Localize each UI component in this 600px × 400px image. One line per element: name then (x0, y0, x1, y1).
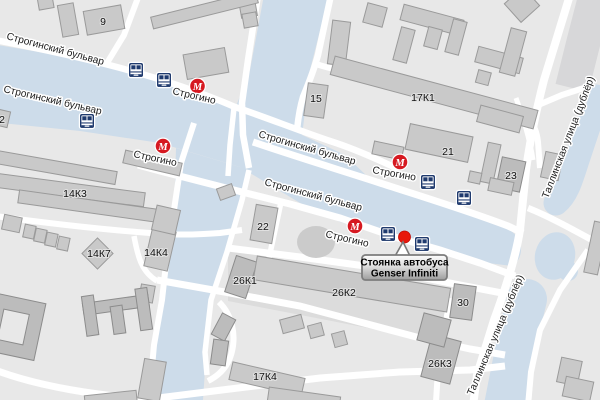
svg-text:21: 21 (442, 146, 454, 158)
svg-text:14К4: 14К4 (144, 247, 168, 259)
svg-text:Стоянка автобуса: Стоянка автобуса (360, 257, 449, 269)
svg-text:2: 2 (0, 114, 5, 126)
svg-text:14К7: 14К7 (87, 248, 111, 260)
svg-text:22: 22 (257, 221, 269, 233)
svg-text:26К1: 26К1 (233, 275, 257, 287)
svg-text:17К1: 17К1 (411, 92, 435, 104)
svg-text:30: 30 (457, 297, 469, 309)
svg-text:26К2: 26К2 (332, 287, 356, 299)
svg-text:23: 23 (505, 170, 517, 182)
svg-text:14К3: 14К3 (63, 188, 87, 200)
svg-text:Genser Infiniti: Genser Infiniti (371, 269, 438, 280)
svg-text:9: 9 (100, 16, 106, 28)
svg-text:15: 15 (310, 93, 322, 105)
svg-text:17К4: 17К4 (253, 371, 277, 383)
svg-text:26К3: 26К3 (428, 358, 452, 370)
